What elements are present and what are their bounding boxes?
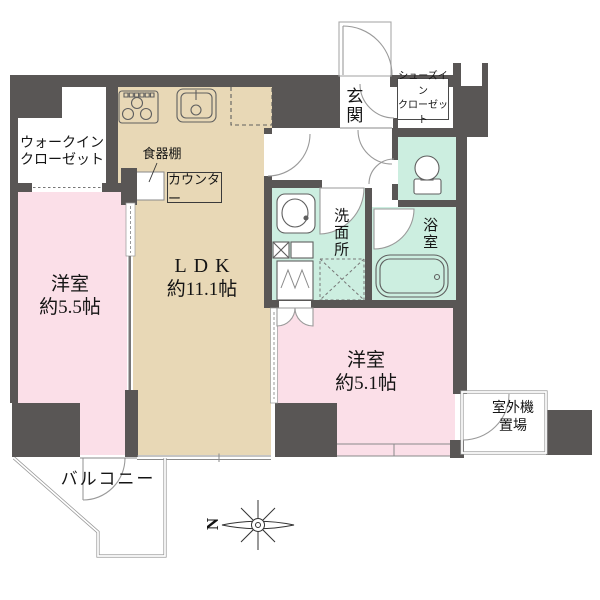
bedroom-second-size: 約5.1帖 — [335, 372, 397, 395]
wall — [456, 137, 467, 310]
wall — [392, 137, 398, 160]
outdoor-unit-label: 室外機 置場 — [492, 400, 534, 436]
toilet-tank-icon — [414, 179, 441, 194]
ldk-label: LDK 約11.1帖 — [167, 254, 238, 302]
wall — [10, 75, 62, 118]
wall — [546, 410, 592, 455]
wall — [453, 308, 467, 394]
counter-box: カウンター — [167, 172, 222, 203]
wall — [365, 188, 372, 302]
entrance-step — [339, 22, 391, 76]
wall — [264, 188, 272, 302]
wic-label-line1: ウォークイン — [20, 135, 104, 152]
washroom-shelf-icon — [291, 242, 313, 258]
washbasin-faucet-icon — [304, 216, 308, 220]
bathroom-label: 浴室 — [420, 217, 438, 251]
outdoor-unit-label-line1: 室外機 — [492, 400, 534, 418]
compass-north-label: N — [203, 518, 223, 530]
wic-label: ウォークイン クローゼット — [20, 135, 104, 169]
compass-ring — [252, 519, 265, 532]
hall-floor — [264, 128, 398, 188]
wall — [392, 184, 398, 200]
front-door-swing — [343, 26, 392, 75]
wall — [392, 128, 456, 137]
floor-plan: ウォークイン クローゼット 洋室 約5.5帖 LDK 約11.1帖 食器棚 カウ… — [0, 0, 600, 600]
bedroom-second-name: 洋室 — [335, 349, 397, 372]
bedroom-second-label: 洋室 約5.1帖 — [335, 349, 397, 395]
balcony-label: バルコニー — [61, 470, 156, 491]
wall — [121, 168, 137, 205]
partition-wall-line — [129, 256, 132, 390]
ldk-size: 約11.1帖 — [167, 279, 238, 302]
bedroom-main-size: 約5.5帖 — [39, 296, 101, 319]
stove-grill-icon — [124, 93, 154, 97]
closet-opening — [279, 301, 311, 308]
compass-rose — [222, 500, 294, 550]
wall — [10, 75, 18, 403]
wall-notch — [461, 57, 482, 86]
wall — [125, 390, 138, 457]
wall — [264, 180, 322, 188]
washroom-label: 洗面所 — [331, 208, 349, 259]
wall — [272, 77, 340, 128]
wall — [106, 77, 118, 187]
sliding-door — [126, 203, 135, 256]
wall — [264, 128, 272, 134]
shoes-closet-label-line2: クローゼット — [398, 99, 448, 128]
wall — [398, 200, 456, 207]
ldk-name: LDK — [167, 254, 238, 278]
shoes-closet-box: シューズイン クローゼット — [397, 78, 449, 120]
outdoor-unit-label-line2: 置場 — [492, 418, 534, 436]
dish-shelf-icon — [133, 172, 164, 200]
linen-closet-icon — [277, 261, 313, 300]
wall — [275, 403, 337, 457]
counter-label: カウンター — [168, 169, 221, 207]
toilet-bowl-icon — [415, 156, 439, 180]
entrance-label: 玄関 — [342, 87, 363, 125]
dish-shelf-label: 食器棚 — [142, 146, 181, 162]
wic-label-line2: クローゼット — [20, 152, 104, 169]
wic-opening — [32, 183, 102, 192]
shoes-closet-label-line1: シューズイン — [398, 70, 448, 99]
wall — [12, 403, 80, 457]
bedroom-main-name: 洋室 — [39, 273, 101, 296]
bedroom-main-label: 洋室 約5.5帖 — [39, 273, 101, 319]
